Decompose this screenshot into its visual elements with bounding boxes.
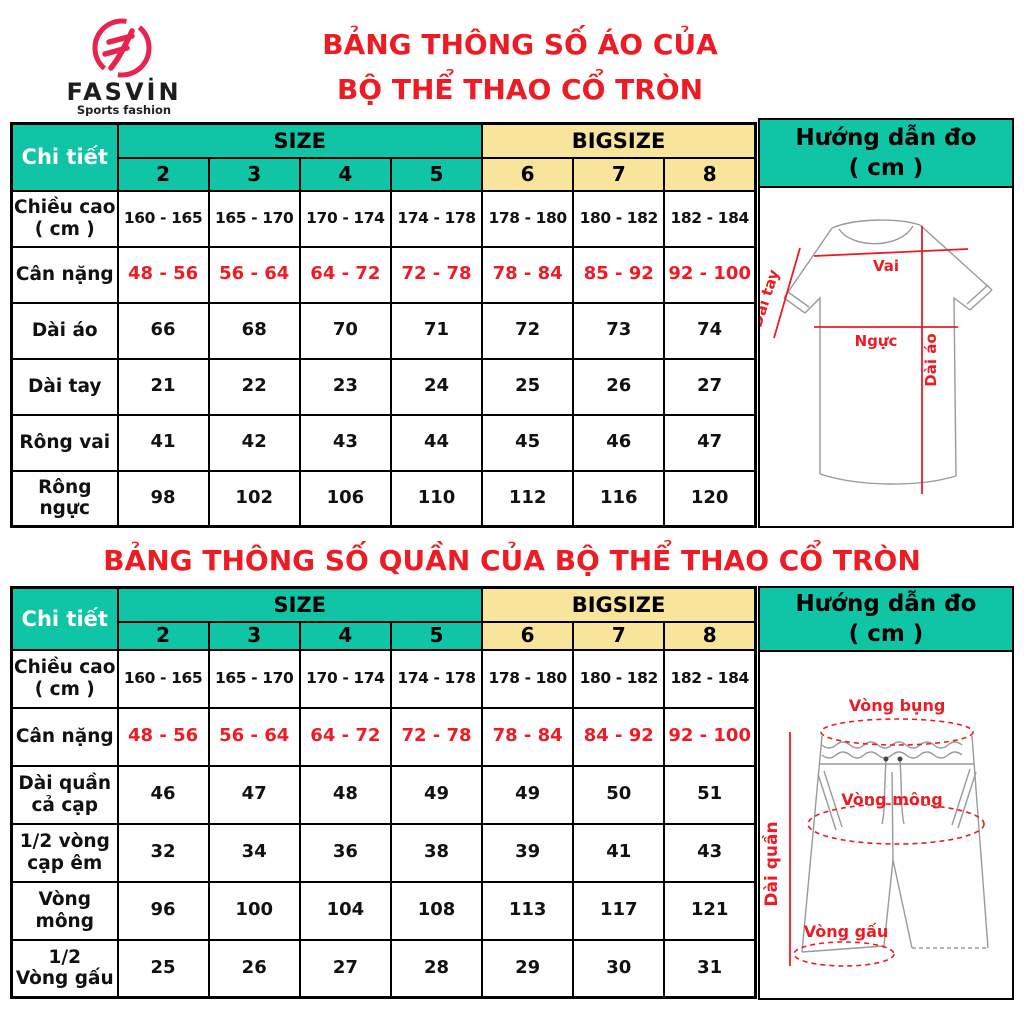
pants-table-title: BẢNG THÔNG SỐ QUẦN CỦA BỘ THỂ THAO CỔ TR… (0, 542, 1024, 580)
bigsize-group-header: BIGSIZE (482, 588, 755, 622)
cell-value: 92 - 100 (664, 708, 755, 766)
cell-value: 42 (209, 415, 300, 471)
cell-value: 70 (300, 303, 391, 359)
row-label: Dài tay (12, 359, 118, 415)
size-group-header: SIZE (118, 588, 483, 622)
size-number: 4 (300, 158, 391, 191)
hip-label: Vòng mông (841, 790, 942, 809)
table-row: Vòng mông96100104108113117121 (12, 882, 756, 940)
table-row: Chiều cao ( cm )160 - 165165 - 170170 - … (12, 191, 756, 247)
cell-value: 174 - 178 (391, 650, 482, 708)
chest-label: Ngực (855, 332, 898, 350)
cell-value: 170 - 174 (300, 650, 391, 708)
cell-value: 43 (664, 824, 755, 882)
cell-value: 23 (300, 359, 391, 415)
size-group-header: SIZE (118, 124, 483, 158)
cell-value: 92 - 100 (664, 247, 755, 303)
cell-value: 48 - 56 (118, 708, 209, 766)
shirt-title-line2: BỘ THỂ THAO CỔ TRÒN (236, 67, 804, 112)
cell-value: 116 (573, 471, 664, 527)
cell-value: 47 (664, 415, 755, 471)
row-label: 1/2 vòng cạp êm (12, 824, 118, 882)
size-number: 3 (209, 158, 300, 191)
cell-value: 98 (118, 471, 209, 527)
cell-value: 26 (209, 940, 300, 998)
cell-value: 74 (664, 303, 755, 359)
shoulder-measure-line (814, 249, 968, 256)
cell-value: 46 (118, 766, 209, 824)
shirt-table-title: BẢNG THÔNG SỐ ÁO CỦA BỘ THỂ THAO CỔ TRÒN (236, 22, 804, 112)
cell-value: 106 (300, 471, 391, 527)
cell-value: 180 - 182 (573, 650, 664, 708)
cell-value: 48 - 56 (118, 247, 209, 303)
row-label: Rông ngực (12, 471, 118, 527)
size-number: 2 (118, 158, 209, 191)
table-row: Cân nặng48 - 5656 - 6464 - 7272 - 7878 -… (12, 247, 756, 303)
cell-value: 51 (664, 766, 755, 824)
cell-value: 29 (482, 940, 573, 998)
cell-value: 44 (391, 415, 482, 471)
cell-value: 48 (300, 766, 391, 824)
cell-value: 27 (664, 359, 755, 415)
tshirt-diagram: Vai Dài tay Ngực Dài áo (760, 188, 1012, 528)
cell-value: 56 - 64 (209, 708, 300, 766)
cell-value: 34 (209, 824, 300, 882)
cell-value: 41 (118, 415, 209, 471)
logo-circle-f-icon (84, 10, 160, 86)
size-number: 7 (573, 622, 664, 650)
cell-value: 25 (482, 359, 573, 415)
cell-value: 110 (391, 471, 482, 527)
row-label: Chiều cao ( cm ) (12, 191, 118, 247)
cell-value: 30 (573, 940, 664, 998)
cell-value: 84 - 92 (573, 708, 664, 766)
cell-value: 41 (573, 824, 664, 882)
cell-value: 182 - 184 (664, 191, 755, 247)
cell-value: 160 - 165 (118, 191, 209, 247)
cell-value: 72 - 78 (391, 247, 482, 303)
shirt-measure-guide-panel: Hướng dẫn đo ( cm ) Vai (758, 118, 1014, 528)
shirt-size-table: Chi tiết SIZE BIGSIZE 2 3 4 5 6 7 8 Chiề… (10, 122, 757, 528)
table-row: Dài áo66687071727374 (12, 303, 756, 359)
table-row: Rông ngực98102106110112116120 (12, 471, 756, 527)
cell-value: 96 (118, 882, 209, 940)
cell-value: 160 - 165 (118, 650, 209, 708)
sleeve-measure-line (774, 248, 800, 338)
pants-length-label: Dài quần (761, 821, 782, 906)
size-number: 5 (391, 622, 482, 650)
cell-value: 174 - 178 (391, 191, 482, 247)
cell-value: 178 - 180 (482, 650, 573, 708)
cell-value: 117 (573, 882, 664, 940)
measure-guide-header: Hướng dẫn đo ( cm ) (760, 588, 1012, 652)
measure-guide-header: Hướng dẫn đo ( cm ) (760, 120, 1012, 188)
shirt-title-line1: BẢNG THÔNG SỐ ÁO CỦA (236, 22, 804, 67)
cell-value: 78 - 84 (482, 708, 573, 766)
pants-size-table: Chi tiết SIZE BIGSIZE 2 3 4 5 6 7 8 Chiề… (10, 586, 757, 999)
cell-value: 22 (209, 359, 300, 415)
cell-value: 46 (573, 415, 664, 471)
size-chart-page: FASVİN Sports fashion BẢNG THÔNG SỐ ÁO C… (0, 0, 1024, 1024)
row-label: Dài quần cả cạp (12, 766, 118, 824)
shorts-diagram: Vòng bụng Vòng mông Vòng gấu Dài quần (760, 652, 1012, 1000)
size-number-row: 2 3 4 5 6 7 8 (12, 158, 756, 191)
cell-value: 25 (118, 940, 209, 998)
cell-value: 120 (664, 471, 755, 527)
hem-measure-ellipse (794, 942, 894, 966)
cell-value: 100 (209, 882, 300, 940)
cell-value: 68 (209, 303, 300, 359)
row-label: Vòng mông (12, 882, 118, 940)
row-label: 1/2 Vòng gấu (12, 940, 118, 998)
row-label: Dài áo (12, 303, 118, 359)
cell-value: 108 (391, 882, 482, 940)
cell-value: 104 (300, 882, 391, 940)
size-number-row: 2 3 4 5 6 7 8 (12, 622, 756, 650)
cell-value: 64 - 72 (300, 247, 391, 303)
cell-value: 113 (482, 882, 573, 940)
cell-value: 21 (118, 359, 209, 415)
brand-logo: FASVİN Sports fashion (48, 8, 204, 116)
cell-value: 64 - 72 (300, 708, 391, 766)
cell-value: 78 - 84 (482, 247, 573, 303)
cell-value: 49 (482, 766, 573, 824)
table-row: Dài quần cả cạp46474849495051 (12, 766, 756, 824)
cell-value: 28 (391, 940, 482, 998)
pants-measure-guide-panel: Hướng dẫn đo ( cm ) (758, 586, 1014, 1000)
cell-value: 38 (391, 824, 482, 882)
detail-header-cell: Chi tiết (12, 124, 118, 191)
table-row: Dài tay21222324252627 (12, 359, 756, 415)
shoulder-label: Vai (873, 257, 899, 275)
table-row: Chiều cao ( cm )160 - 165165 - 170170 - … (12, 650, 756, 708)
table-row: Rông vai41424344454647 (12, 415, 756, 471)
cell-value: 27 (300, 940, 391, 998)
shirt-length-label: Dài áo (922, 333, 940, 386)
size-number: 2 (118, 622, 209, 650)
cell-value: 180 - 182 (573, 191, 664, 247)
size-number: 6 (482, 622, 573, 650)
size-number: 6 (482, 158, 573, 191)
cell-value: 85 - 92 (573, 247, 664, 303)
cell-value: 170 - 174 (300, 191, 391, 247)
cell-value: 112 (482, 471, 573, 527)
waist-measure-ellipse (821, 719, 973, 745)
cell-value: 47 (209, 766, 300, 824)
size-number: 4 (300, 622, 391, 650)
cell-value: 182 - 184 (664, 650, 755, 708)
cell-value: 56 - 64 (209, 247, 300, 303)
size-number: 5 (391, 158, 482, 191)
row-label: Cân nặng (12, 708, 118, 766)
group-header-row: Chi tiết SIZE BIGSIZE (12, 124, 756, 158)
shirt-size-table-wrap: Chi tiết SIZE BIGSIZE 2 3 4 5 6 7 8 Chiề… (10, 122, 757, 528)
pants-size-table-wrap: Chi tiết SIZE BIGSIZE 2 3 4 5 6 7 8 Chiề… (10, 586, 757, 999)
hem-label: Vòng gấu (804, 922, 889, 941)
cell-value: 26 (573, 359, 664, 415)
cell-value: 49 (391, 766, 482, 824)
cell-value: 121 (664, 882, 755, 940)
cell-value: 72 (482, 303, 573, 359)
size-number: 8 (664, 158, 755, 191)
cell-value: 39 (482, 824, 573, 882)
group-header-row: Chi tiết SIZE BIGSIZE (12, 588, 756, 622)
detail-header-cell: Chi tiết (12, 588, 118, 650)
cell-value: 36 (300, 824, 391, 882)
table-row: 1/2 vòng cạp êm32343638394143 (12, 824, 756, 882)
cell-value: 45 (482, 415, 573, 471)
cell-value: 165 - 170 (209, 191, 300, 247)
cell-value: 102 (209, 471, 300, 527)
cell-value: 178 - 180 (482, 191, 573, 247)
size-number: 7 (573, 158, 664, 191)
cell-value: 50 (573, 766, 664, 824)
row-label: Cân nặng (12, 247, 118, 303)
brand-name: FASVİN (66, 77, 181, 106)
table-row: 1/2 Vòng gấu25262728293031 (12, 940, 756, 998)
cell-value: 31 (664, 940, 755, 998)
cell-value: 165 - 170 (209, 650, 300, 708)
cell-value: 24 (391, 359, 482, 415)
cell-value: 71 (391, 303, 482, 359)
waist-label: Vòng bụng (849, 696, 946, 715)
bigsize-group-header: BIGSIZE (482, 124, 755, 158)
table-row: Cân nặng48 - 5656 - 6464 - 7272 - 7878 -… (12, 708, 756, 766)
cell-value: 43 (300, 415, 391, 471)
row-label: Rông vai (12, 415, 118, 471)
brand-tagline: Sports fashion (77, 103, 171, 116)
cell-value: 32 (118, 824, 209, 882)
cell-value: 72 - 78 (391, 708, 482, 766)
row-label: Chiều cao ( cm ) (12, 650, 118, 708)
size-number: 8 (664, 622, 755, 650)
cell-value: 73 (573, 303, 664, 359)
size-number: 3 (209, 622, 300, 650)
cell-value: 66 (118, 303, 209, 359)
